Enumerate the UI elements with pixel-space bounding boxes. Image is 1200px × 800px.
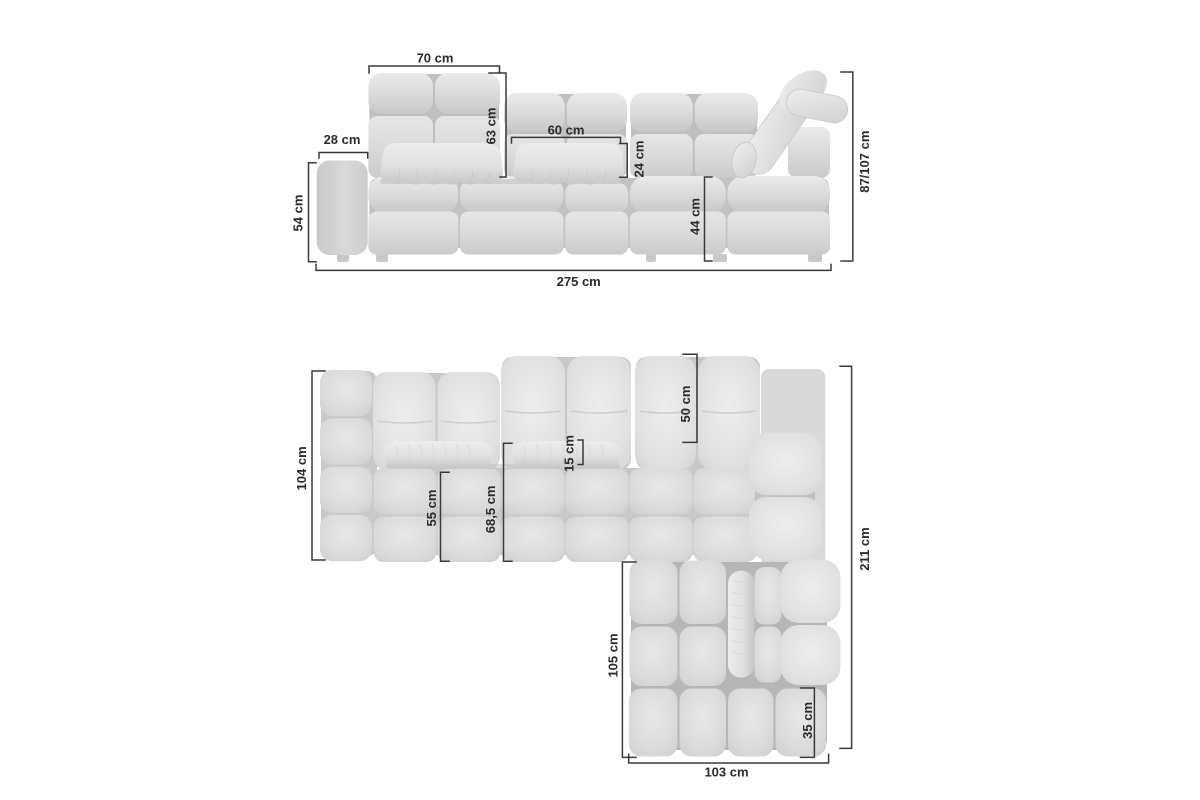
svg-text:63 cm: 63 cm [484,108,499,145]
svg-text:28 cm: 28 cm [324,132,361,147]
svg-text:211 cm: 211 cm [857,527,872,570]
svg-text:35 cm: 35 cm [800,702,815,739]
svg-text:68,5 cm: 68,5 cm [483,486,498,534]
svg-text:70 cm: 70 cm [417,51,454,66]
svg-text:15 cm: 15 cm [562,435,577,472]
svg-text:54 cm: 54 cm [290,195,305,232]
svg-text:60 cm: 60 cm [548,123,585,138]
svg-text:44 cm: 44 cm [688,198,703,235]
svg-text:87/107 cm: 87/107 cm [857,131,872,193]
svg-text:103 cm: 103 cm [704,765,748,780]
svg-text:105 cm: 105 cm [605,633,620,677]
svg-text:104 cm: 104 cm [294,446,309,490]
svg-text:275 cm: 275 cm [557,274,601,289]
svg-text:55 cm: 55 cm [424,490,439,527]
svg-text:24 cm: 24 cm [632,141,647,178]
svg-text:50 cm: 50 cm [678,386,693,423]
